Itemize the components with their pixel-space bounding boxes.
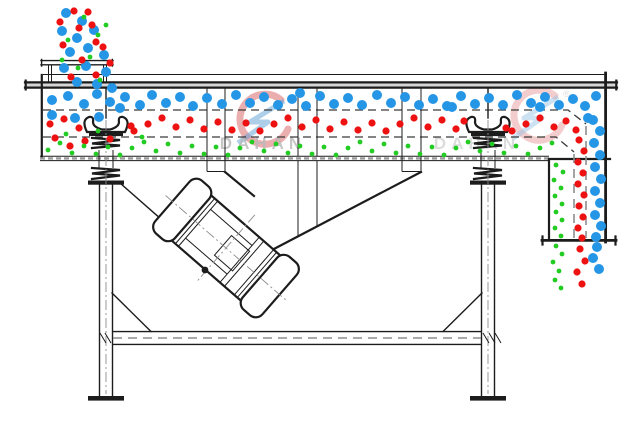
vibration-motor — [137, 162, 315, 333]
medium-red-particle — [92, 71, 99, 78]
fine-green-particle — [560, 252, 565, 257]
medium-red-particle — [75, 124, 82, 131]
coarse-blue-particle — [161, 98, 171, 108]
medium-red-particle — [214, 118, 221, 125]
coarse-blue-particle — [83, 43, 93, 53]
coarse-blue-particle — [594, 264, 604, 274]
medium-red-particle — [576, 245, 583, 252]
fine-green-particle — [490, 142, 495, 147]
coarse-blue-particle — [595, 150, 605, 160]
coarse-blue-particle — [217, 99, 227, 109]
fine-green-particle — [76, 66, 81, 71]
fine-green-particle — [553, 278, 558, 283]
fine-green-particle — [559, 234, 564, 239]
fine-green-particle — [554, 244, 559, 249]
fine-green-particle — [552, 178, 557, 183]
medium-red-particle — [298, 123, 305, 130]
fine-green-particle — [98, 78, 103, 83]
coarse-blue-particle — [287, 94, 297, 104]
medium-red-particle — [59, 41, 66, 48]
coarse-blue-particle — [99, 50, 109, 60]
medium-red-particle — [581, 257, 588, 264]
coarse-blue-particle — [357, 100, 367, 110]
base-plate-left — [88, 396, 124, 401]
medium-red-particle — [130, 127, 137, 134]
coarse-blue-particle — [595, 126, 605, 136]
fine-green-particle — [70, 151, 75, 156]
fine-green-particle — [370, 149, 375, 154]
fine-green-particle — [96, 129, 101, 134]
brace-left — [112, 293, 151, 332]
coarse-blue-particle — [596, 221, 606, 231]
medium-red-particle — [424, 123, 431, 130]
coarse-blue-particle — [63, 91, 73, 101]
medium-red-particle — [200, 125, 207, 132]
motor-bolt — [202, 267, 209, 274]
fine-green-particle — [551, 260, 556, 265]
medium-red-particle — [60, 115, 67, 122]
coarse-blue-particle — [147, 90, 157, 100]
medium-red-particle — [51, 134, 58, 141]
medium-red-particle — [84, 8, 91, 15]
medium-red-particle — [270, 120, 277, 127]
medium-red-particle — [438, 116, 445, 123]
coarse-blue-particle — [273, 100, 283, 110]
coarse-blue-particle — [590, 162, 600, 172]
diagram-canvas: ® DAHAN ® DAHAN — [0, 0, 638, 428]
fine-green-particle — [274, 142, 279, 147]
medium-red-particle — [574, 224, 581, 231]
medium-red-particle — [75, 24, 82, 31]
coarse-blue-particle — [447, 102, 457, 112]
medium-red-particle — [410, 114, 417, 121]
fine-green-particle — [82, 15, 87, 20]
coarse-blue-particle — [135, 100, 145, 110]
coarse-blue-particle — [498, 100, 508, 110]
coarse-blue-particle — [590, 186, 600, 196]
medium-red-particle — [284, 114, 291, 121]
medium-red-particle — [172, 123, 179, 130]
coarse-blue-particle — [59, 63, 69, 73]
coarse-blue-particle — [65, 47, 75, 57]
fine-green-particle — [550, 141, 555, 146]
coarse-blue-particle — [428, 94, 438, 104]
fine-green-particle — [166, 142, 171, 147]
medium-red-particle — [256, 127, 263, 134]
fine-green-particle — [310, 152, 315, 157]
fine-green-particle — [96, 33, 101, 38]
center-posts — [298, 161, 317, 237]
fine-green-particle — [130, 146, 135, 151]
particle-layer — [46, 7, 606, 290]
fine-green-particle — [262, 149, 267, 154]
coarse-blue-particle — [590, 210, 600, 220]
fine-green-particle — [358, 140, 363, 145]
fine-green-particle — [559, 286, 564, 291]
medium-red-particle — [575, 202, 582, 209]
coarse-blue-particle — [295, 88, 305, 98]
medium-red-particle — [70, 7, 77, 14]
fine-green-particle — [466, 140, 471, 145]
medium-red-particle — [580, 147, 587, 154]
fine-green-particle — [561, 170, 566, 175]
medium-red-particle — [81, 137, 88, 144]
fine-green-particle — [430, 145, 435, 150]
joint-hatch-left — [100, 333, 111, 343]
coarse-blue-particle — [386, 98, 396, 108]
coarse-blue-particle — [343, 93, 353, 103]
medium-red-particle — [578, 280, 585, 287]
coarse-blue-particle — [202, 93, 212, 103]
fine-green-particle — [322, 145, 327, 150]
medium-red-particle — [562, 117, 569, 124]
fine-green-particle — [554, 210, 559, 215]
medium-red-particle — [580, 191, 587, 198]
fine-green-particle — [58, 141, 63, 146]
coarse-blue-particle — [596, 174, 606, 184]
fine-green-particle — [64, 132, 69, 137]
coarse-blue-particle — [47, 110, 57, 120]
coarse-blue-particle — [535, 102, 545, 112]
fine-green-particle — [82, 144, 87, 149]
medium-red-particle — [572, 126, 579, 133]
medium-red-particle — [368, 119, 375, 126]
coarse-blue-particle — [175, 92, 185, 102]
medium-red-particle — [340, 118, 347, 125]
coarse-blue-particle — [414, 100, 424, 110]
fine-green-particle — [154, 149, 159, 154]
coarse-blue-particle — [120, 92, 130, 102]
medium-red-particle — [228, 126, 235, 133]
coarse-blue-particle — [588, 253, 598, 263]
fine-green-particle — [178, 151, 183, 156]
coarse-blue-particle — [47, 95, 57, 105]
fine-green-particle — [238, 146, 243, 151]
vibrating-screen-diagram: ® DAHAN ® DAHAN — [0, 0, 638, 428]
medium-red-particle — [242, 119, 249, 126]
coarse-blue-particle — [188, 101, 198, 111]
medium-red-particle — [78, 56, 85, 63]
coarse-blue-particle — [70, 113, 80, 123]
coarse-blue-particle — [115, 103, 125, 113]
medium-red-particle — [550, 123, 557, 130]
joint-hatch-right — [483, 333, 501, 343]
coarse-blue-particle — [245, 98, 255, 108]
medium-red-particle — [92, 38, 99, 45]
coarse-blue-particle — [92, 89, 102, 99]
fine-green-particle — [418, 152, 423, 157]
coarse-blue-particle — [301, 101, 311, 111]
medium-red-particle — [106, 59, 113, 66]
medium-red-particle — [579, 213, 586, 220]
fine-green-particle — [346, 146, 351, 151]
coarse-blue-particle — [588, 115, 598, 125]
fine-green-particle — [60, 58, 65, 63]
medium-red-particle — [46, 120, 53, 127]
medium-red-particle — [88, 21, 95, 28]
medium-red-particle — [452, 125, 459, 132]
coarse-blue-particle — [591, 91, 601, 101]
coarse-blue-particle — [554, 100, 564, 110]
coarse-blue-particle — [94, 112, 104, 122]
medium-red-particle — [575, 136, 582, 143]
coarse-blue-particle — [595, 198, 605, 208]
coarse-blue-particle — [526, 98, 536, 108]
support-spring-left — [84, 88, 127, 394]
medium-red-particle — [326, 125, 333, 132]
fine-green-particle — [478, 149, 483, 154]
medium-red-particle — [99, 43, 106, 50]
medium-red-particle — [106, 135, 113, 142]
coarse-blue-particle — [591, 232, 601, 242]
medium-red-particle — [144, 120, 151, 127]
fine-green-particle — [202, 152, 207, 157]
coarse-blue-particle — [231, 90, 241, 100]
fine-green-particle — [442, 153, 447, 158]
fine-green-particle — [538, 146, 543, 151]
base-plate-right — [470, 396, 506, 401]
medium-red-particle — [56, 18, 63, 25]
coarse-blue-particle — [568, 94, 578, 104]
medium-red-particle — [574, 158, 581, 165]
fine-green-particle — [104, 23, 109, 28]
medium-red-particle — [574, 180, 581, 187]
coarse-blue-particle — [589, 138, 599, 148]
fine-green-particle — [46, 148, 51, 153]
medium-red-particle — [522, 120, 529, 127]
fine-green-particle — [394, 151, 399, 156]
fine-green-particle — [553, 226, 558, 231]
coarse-blue-particle — [57, 26, 67, 36]
medium-red-particle — [460, 117, 467, 124]
coarse-blue-particle — [79, 99, 89, 109]
coarse-blue-particle — [592, 242, 602, 252]
mount-plate-short — [225, 172, 254, 196]
coarse-blue-particle — [72, 33, 82, 43]
coarse-blue-particle — [580, 101, 590, 111]
coarse-blue-particle — [456, 91, 466, 101]
coarse-blue-particle — [512, 90, 522, 100]
fine-green-particle — [514, 144, 519, 149]
medium-red-particle — [578, 234, 585, 241]
fine-green-particle — [140, 135, 145, 140]
fine-green-particle — [382, 142, 387, 147]
fine-green-particle — [118, 153, 123, 158]
fine-green-particle — [559, 186, 564, 191]
motor-centerlines — [137, 162, 315, 333]
fine-green-particle — [526, 152, 531, 157]
fine-green-particle — [286, 151, 291, 156]
fine-green-particle — [557, 269, 562, 274]
fine-green-particle — [334, 153, 339, 158]
brace-right — [443, 293, 482, 332]
medium-red-particle — [354, 126, 361, 133]
medium-red-particle — [66, 142, 73, 149]
medium-red-particle — [382, 127, 389, 134]
medium-red-particle — [573, 268, 580, 275]
coarse-blue-particle — [400, 92, 410, 102]
fine-green-particle — [406, 144, 411, 149]
support-spring-right — [466, 88, 509, 394]
medium-red-particle — [508, 127, 515, 134]
coarse-blue-particle — [105, 97, 115, 107]
coarse-blue-particle — [329, 99, 339, 109]
medium-red-particle — [158, 114, 165, 121]
fine-green-particle — [560, 202, 565, 207]
coarse-blue-particle — [61, 8, 71, 18]
fine-green-particle — [214, 145, 219, 150]
fine-green-particle — [88, 55, 93, 60]
fine-green-particle — [250, 140, 255, 145]
coarse-blue-particle — [372, 90, 382, 100]
coarse-blue-particle — [484, 93, 494, 103]
coarse-blue-particle — [470, 99, 480, 109]
coarse-blue-particle — [101, 67, 111, 77]
fine-green-particle — [226, 153, 231, 158]
coarse-blue-particle — [107, 83, 117, 93]
mount-plate-long — [272, 172, 421, 250]
fine-green-particle — [554, 163, 559, 168]
coarse-blue-particle — [540, 92, 550, 102]
fine-green-particle — [454, 146, 459, 151]
fine-green-particle — [560, 218, 565, 223]
medium-red-particle — [396, 120, 403, 127]
medium-red-particle — [186, 116, 193, 123]
medium-red-particle — [67, 73, 74, 80]
fine-green-particle — [502, 151, 507, 156]
medium-red-particle — [312, 116, 319, 123]
medium-red-particle — [579, 169, 586, 176]
fine-green-particle — [94, 152, 99, 157]
support-frame — [88, 185, 506, 401]
fine-green-particle — [66, 38, 71, 43]
coarse-blue-particle — [259, 92, 269, 102]
fine-green-particle — [298, 144, 303, 149]
fine-green-particle — [142, 140, 147, 145]
fine-green-particle — [553, 194, 558, 199]
fine-green-particle — [106, 145, 111, 150]
medium-red-particle — [536, 114, 543, 121]
fine-green-particle — [190, 144, 195, 149]
coarse-blue-particle — [315, 91, 325, 101]
